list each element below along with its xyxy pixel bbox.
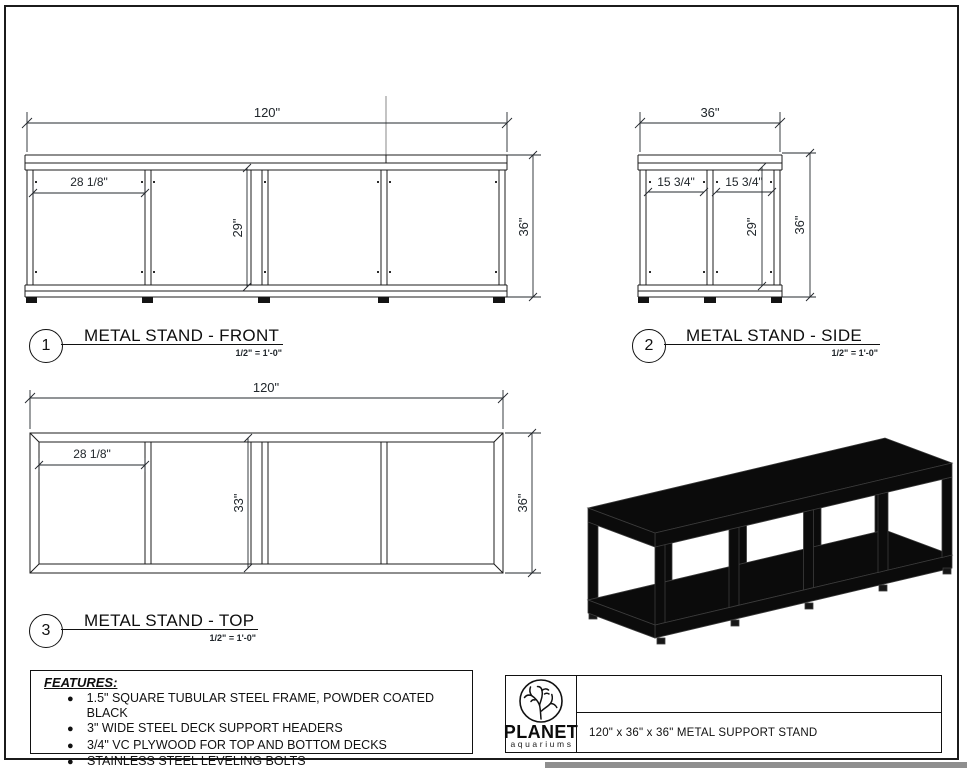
side-view-drawing: 36" 15 3/4" 15 3/4" 29" 36" — [635, 105, 816, 303]
top-headers — [145, 442, 387, 564]
coral-logo-icon — [518, 678, 564, 724]
front-bolt-marks — [35, 181, 497, 273]
feature-item: ● 3/4" VC PLYWOOD FOR TOP AND BOTTOM DEC… — [31, 738, 472, 754]
front-dim-clear-height-label: 29" — [230, 218, 245, 237]
side-view-number-text: 2 — [645, 337, 654, 355]
front-dim-width-label: 120" — [254, 105, 281, 120]
feature-item: ● 1.5" SQUARE TUBULAR STEEL FRAME, POWDE… — [31, 691, 472, 721]
side-dim-width: 36" — [635, 105, 785, 152]
front-dim-bay: 28 1/8" — [29, 175, 149, 200]
front-dim-clear-height: 29" — [230, 164, 251, 291]
front-dim-bay-label: 28 1/8" — [70, 175, 108, 189]
top-dim-bay-label: 28 1/8" — [73, 447, 111, 461]
top-dim-width-label: 120" — [253, 380, 280, 395]
front-leveling-feet — [26, 297, 505, 303]
side-dim-bay-left-label: 15 3/4" — [657, 175, 695, 189]
side-dim-bay-right: 15 3/4" — [712, 175, 776, 196]
top-view-scale: 1/2" = 1'-0" — [134, 633, 256, 643]
features-box: FEATURES: ● 1.5" SQUARE TUBULAR STEEL FR… — [30, 670, 473, 754]
front-view-scale: 1/2" = 1'-0" — [160, 348, 282, 358]
side-view-number: 2 — [632, 329, 666, 363]
top-dim-clear-depth: 33" — [231, 434, 252, 572]
side-view-title: METAL STAND - SIDE — [686, 326, 862, 346]
feature-item-text: 3" WIDE STEEL DECK SUPPORT HEADERS — [87, 721, 343, 736]
side-dim-bay-right-label: 15 3/4" — [725, 175, 763, 189]
side-bottom-rail — [638, 285, 782, 297]
top-dim-bay: 28 1/8" — [35, 447, 149, 472]
feature-item-text: 3/4" VC PLYWOOD FOR TOP AND BOTTOM DECKS — [87, 738, 387, 753]
side-top-deck — [638, 155, 782, 170]
side-dim-height: 36" — [782, 149, 816, 301]
title-block-right: 120" x 36" x 36" METAL SUPPORT STAND — [577, 676, 941, 752]
feature-item-text: STAINLESS STEEL LEVELING BOLTS — [87, 754, 306, 769]
front-view-title: METAL STAND - FRONT — [84, 326, 279, 346]
drawing-title: 120" x 36" x 36" METAL SUPPORT STAND — [589, 727, 817, 739]
side-dim-height-label: 36" — [792, 215, 807, 234]
iso-bottom-deck — [588, 530, 952, 638]
top-dim-width: 120" — [25, 380, 508, 429]
front-bottom-rail — [25, 285, 507, 297]
drawing-title-cell: 120" x 36" x 36" METAL SUPPORT STAND — [577, 713, 941, 752]
side-dim-bay-left: 15 3/4" — [644, 175, 708, 196]
brand-logo-cell: PLANET aquariums — [506, 676, 577, 752]
bullet-icon: ● — [67, 722, 87, 737]
top-dim-depth: 36" — [505, 429, 541, 577]
iso-top-deck — [588, 438, 952, 547]
front-dim-width: 120" — [22, 105, 512, 152]
side-dim-clear-height-label: 29" — [744, 217, 759, 236]
title-block: PLANET aquariums 120" x 36" x 36" METAL … — [505, 675, 942, 753]
brand-tagline: aquariums — [510, 740, 573, 749]
top-dim-clear-depth-label: 33" — [231, 493, 246, 512]
features-heading: FEATURES: — [44, 675, 472, 690]
front-view-number: 1 — [29, 329, 63, 363]
bullet-icon: ● — [67, 739, 87, 754]
iso-render — [588, 438, 952, 644]
feature-item: ● 3" WIDE STEEL DECK SUPPORT HEADERS — [31, 721, 472, 737]
side-leveling-feet — [638, 297, 782, 303]
top-view-drawing: 120" 28 1/8" 33" 36" — [25, 380, 541, 577]
brand-name: PLANET — [504, 725, 578, 740]
front-dim-height: 36" — [507, 151, 541, 301]
drawing-sheet: { "sheet": { "front_view": { "number": "… — [0, 0, 967, 768]
top-view-title: METAL STAND - TOP — [84, 611, 254, 631]
top-dim-depth-label: 36" — [515, 493, 530, 512]
top-view-number-text: 3 — [42, 622, 51, 640]
bullet-icon: ● — [67, 692, 87, 707]
feature-item-text: 1.5" SQUARE TUBULAR STEEL FRAME, POWDER … — [87, 691, 472, 721]
title-block-empty-cell — [577, 676, 941, 713]
side-dim-width-label: 36" — [700, 105, 719, 120]
front-top-deck — [25, 155, 507, 170]
cad-linework: 120" 28 1/8" 29" 36" — [0, 0, 967, 768]
front-view-drawing: 120" 28 1/8" 29" 36" — [22, 96, 541, 303]
front-view-number-text: 1 — [42, 337, 51, 355]
top-view-number: 3 — [29, 614, 63, 648]
side-view-scale: 1/2" = 1'-0" — [756, 348, 878, 358]
front-dim-height-label: 36" — [516, 217, 531, 236]
